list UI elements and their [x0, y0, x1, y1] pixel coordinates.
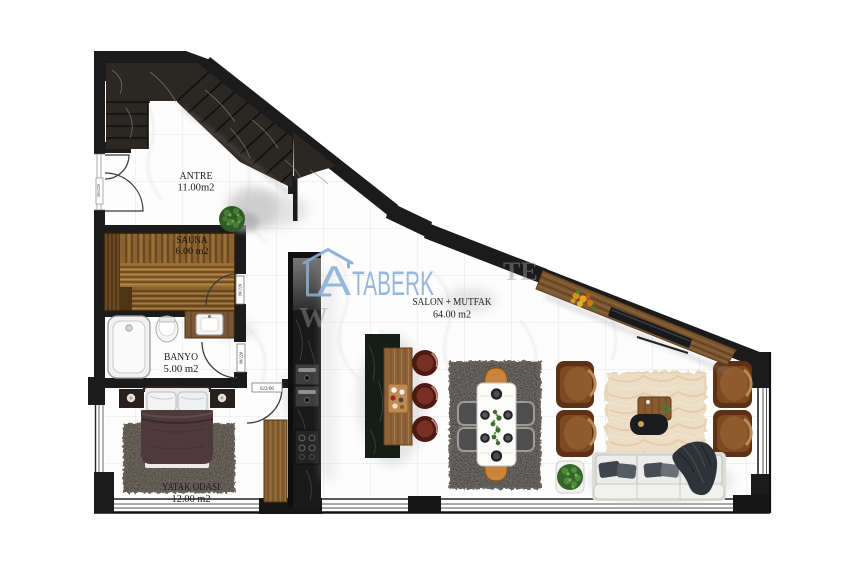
svg-text:TE: TE	[503, 257, 538, 286]
svg-text:ANTRE: ANTRE	[180, 171, 213, 182]
svg-text:12.00 m2: 12.00 m2	[172, 494, 211, 505]
svg-text:A: A	[317, 257, 351, 304]
svg-text:YATAK ODASI: YATAK ODASI	[162, 482, 220, 493]
svg-text:BANYO: BANYO	[164, 352, 198, 363]
svg-text:SALON + MUTFAK: SALON + MUTFAK	[413, 297, 492, 308]
svg-text:6.00 m2: 6.00 m2	[176, 246, 209, 256]
svg-text:11.00m2: 11.00m2	[178, 183, 215, 194]
svg-text:64.00 m2: 64.00 m2	[433, 310, 471, 321]
svg-text:90/220: 90/220	[238, 283, 243, 296]
svg-text:90/220: 90/220	[239, 351, 244, 364]
svg-text:W: W	[299, 302, 328, 334]
svg-text:5.00 m2: 5.00 m2	[164, 364, 199, 375]
svg-text:SAUNA: SAUNA	[177, 236, 208, 246]
svg-text:022/06: 022/06	[260, 387, 274, 392]
svg-text:100/220: 100/220	[96, 184, 101, 198]
